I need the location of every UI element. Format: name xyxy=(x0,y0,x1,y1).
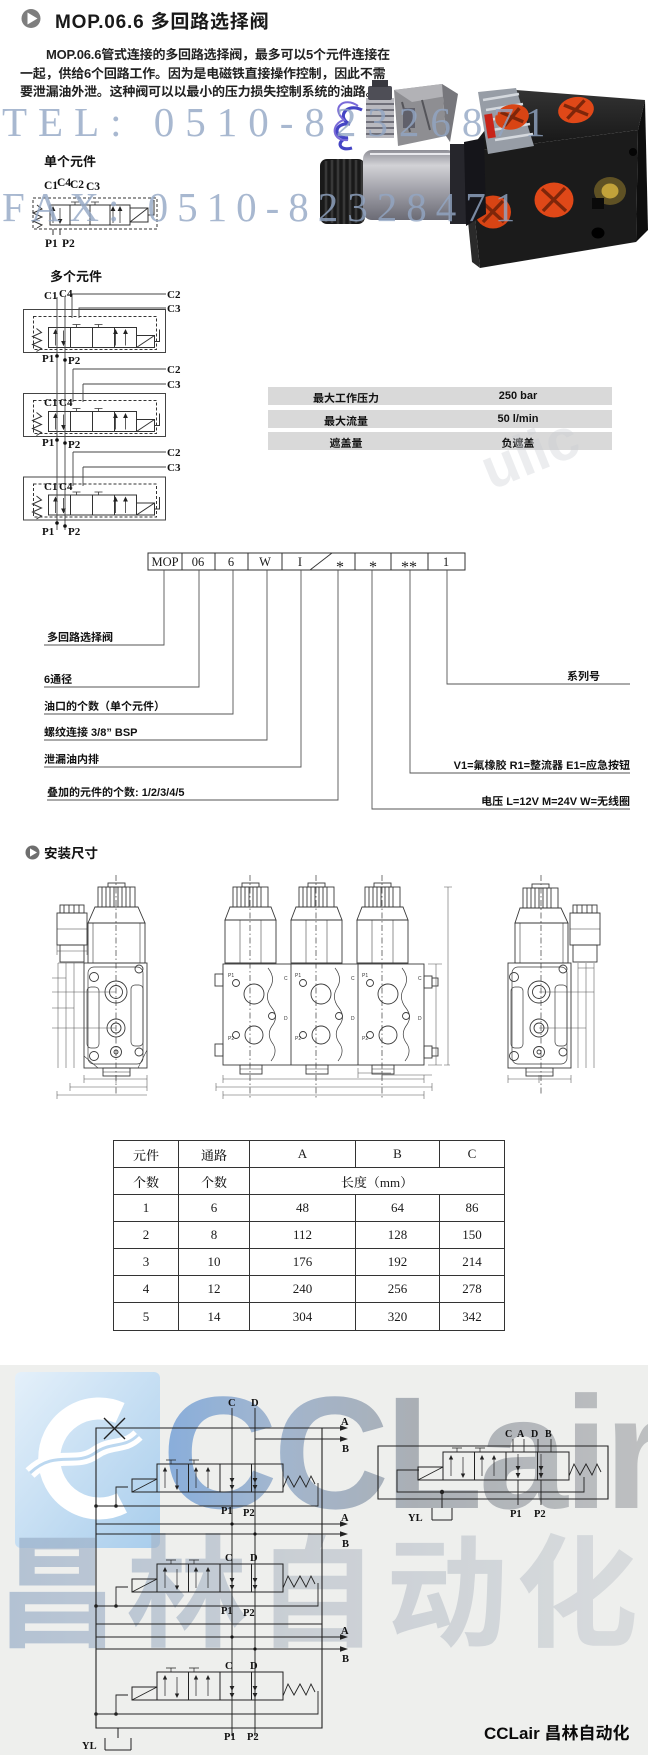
svg-text:C2: C2 xyxy=(167,289,181,301)
svg-text:P1: P1 xyxy=(42,353,54,365)
svg-text:P2: P2 xyxy=(243,1608,255,1619)
svg-text:*: * xyxy=(369,559,377,576)
svg-text:YL: YL xyxy=(408,1513,423,1524)
svg-text:**: ** xyxy=(401,559,417,576)
svg-text:C4: C4 xyxy=(59,288,73,300)
svg-text:C4: C4 xyxy=(59,397,73,409)
svg-text:P2: P2 xyxy=(243,1508,255,1519)
svg-text:6通径: 6通径 xyxy=(44,673,72,686)
svg-text:C: C xyxy=(284,976,288,982)
svg-text:V1=氟橡胶 R1=整流器 E1=应急按钮: V1=氟橡胶 R1=整流器 E1=应急按钮 xyxy=(454,759,630,772)
svg-text:P1: P1 xyxy=(224,1732,236,1743)
svg-text:C: C xyxy=(505,1429,512,1440)
svg-text:叠加的元件的个数: 1/2/3/4/5: 叠加的元件的个数: 1/2/3/4/5 xyxy=(47,786,185,799)
svg-text:C3: C3 xyxy=(167,303,181,315)
svg-text:P1: P1 xyxy=(510,1509,522,1520)
svg-text:P1: P1 xyxy=(42,437,54,449)
svg-text:C1: C1 xyxy=(44,397,57,409)
svg-text:P2: P2 xyxy=(62,238,75,250)
svg-text:W: W xyxy=(259,555,271,569)
svg-text:C3: C3 xyxy=(167,462,181,474)
svg-text:P2: P2 xyxy=(68,526,81,538)
svg-text:A: A xyxy=(517,1429,525,1440)
svg-text:MOP: MOP xyxy=(151,555,178,569)
svg-text:YL: YL xyxy=(82,1741,97,1752)
svg-text:6: 6 xyxy=(228,555,234,569)
svg-text:C2: C2 xyxy=(167,447,181,459)
svg-text:C4: C4 xyxy=(59,481,73,493)
svg-text:P2: P2 xyxy=(534,1509,546,1520)
svg-text:1: 1 xyxy=(443,555,449,569)
svg-text:电压 L=12V M=24V W=无线圈: 电压 L=12V M=24V W=无线圈 xyxy=(481,795,630,808)
svg-text:C1: C1 xyxy=(44,481,57,493)
svg-text:螺纹连接 3/8” BSP: 螺纹连接 3/8” BSP xyxy=(44,726,138,739)
svg-text:B: B xyxy=(545,1429,552,1440)
svg-text:油口的个数（单个元件）: 油口的个数（单个元件） xyxy=(44,700,165,713)
svg-text:C2: C2 xyxy=(167,364,181,376)
svg-text:P2: P2 xyxy=(68,439,81,451)
svg-text:P1: P1 xyxy=(45,238,58,250)
svg-text:系列号: 系列号 xyxy=(567,670,600,683)
svg-text:P1: P1 xyxy=(228,973,234,979)
svg-text:P1: P1 xyxy=(42,526,54,538)
svg-text:D: D xyxy=(284,1016,288,1022)
svg-text:I: I xyxy=(298,555,302,569)
svg-text:*: * xyxy=(336,559,344,576)
svg-text:P2: P2 xyxy=(247,1732,259,1743)
svg-text:C1: C1 xyxy=(44,290,57,302)
svg-text:P1: P1 xyxy=(221,1506,233,1517)
svg-text:C3: C3 xyxy=(167,379,181,391)
svg-text:D: D xyxy=(531,1429,538,1440)
svg-text:多回路选择阀: 多回路选择阀 xyxy=(47,631,113,644)
svg-text:P2: P2 xyxy=(68,355,81,367)
svg-text:P2: P2 xyxy=(228,1036,234,1042)
svg-text:泄漏油内排: 泄漏油内排 xyxy=(44,753,99,766)
svg-text:P1: P1 xyxy=(221,1606,233,1617)
svg-text:06: 06 xyxy=(192,555,205,569)
